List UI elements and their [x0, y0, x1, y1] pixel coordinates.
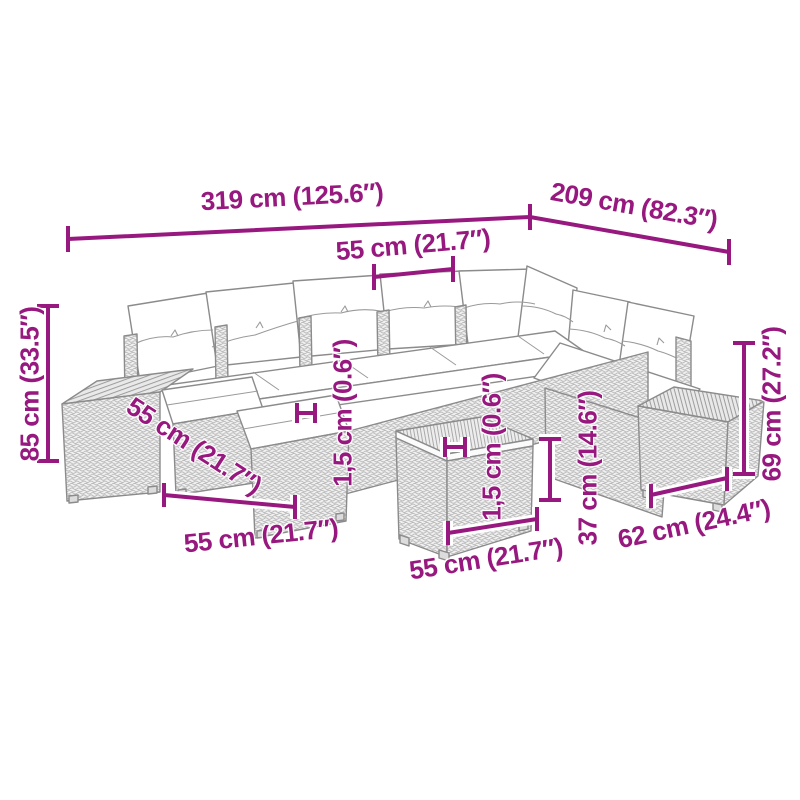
product-dimension-diagram: 319 cm (125.6″) 209 cm (82.3″) 55 cm (21… [0, 0, 800, 800]
dim-label-cushion-thickness: 1,5 cm (0.6″) [328, 339, 359, 487]
dim-label-tabletop-thickness: 1,5 cm (0.6″) [477, 373, 508, 521]
dim-label-overall-height: 85 cm (33.5″) [15, 307, 46, 462]
dim-label-side-table-height: 69 cm (27.2″) [757, 327, 788, 482]
dim-label-table-height: 37 cm (14.6″) [573, 391, 604, 546]
sofa-line-art [0, 0, 800, 800]
